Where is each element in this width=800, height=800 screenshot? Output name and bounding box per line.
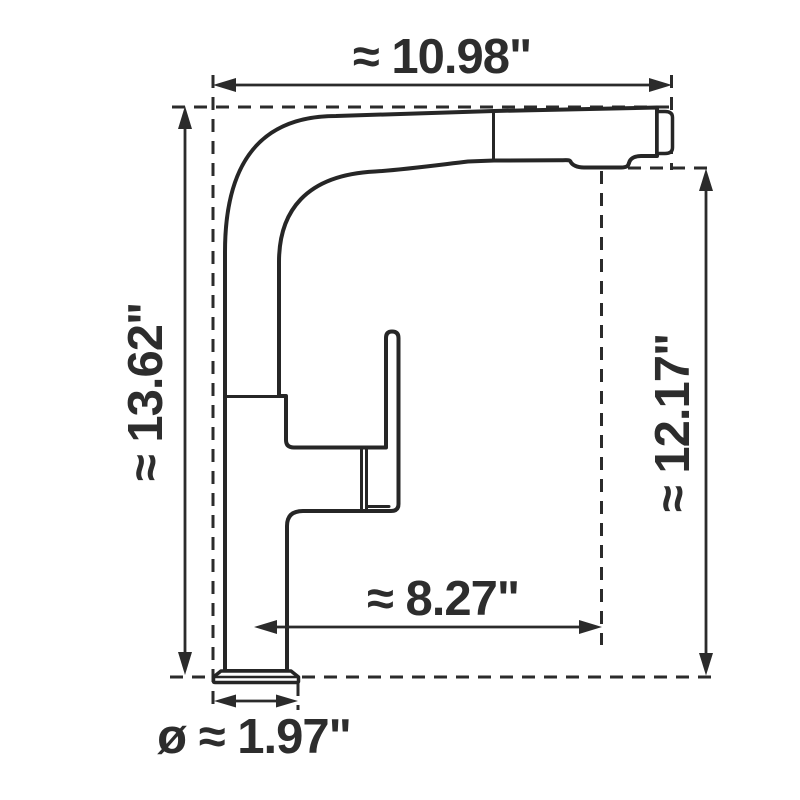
arrowhead-top-width-right: [649, 78, 672, 92]
dimension-label-spout-reach: ≈ 8.27": [367, 571, 519, 627]
dimension-label-spout-height: ≈ 12.17": [645, 334, 701, 512]
arrowhead-spout-height-bottom: [699, 653, 713, 676]
arrowhead-base-diameter-right: [276, 695, 298, 708]
dimension-label-base-diameter: ø ≈ 1.97": [157, 709, 351, 765]
arrowhead-top-width-left: [213, 78, 236, 92]
arrowhead-base-diameter-left: [214, 695, 236, 708]
arrowhead-spout-height-top: [699, 169, 713, 192]
arrowhead-overall-height-bottom: [178, 652, 192, 675]
arrowhead-overall-height-top: [178, 106, 192, 129]
dimension-label-overall-height: ≈ 13.62": [118, 303, 174, 481]
arrowhead-spout-reach-right: [579, 620, 602, 634]
dimension-label-top-width: ≈ 10.98": [353, 29, 531, 85]
faucet-dimension-diagram: ≈ 10.98" ≈ 13.62" ≈ 12.17" ≈ 8.27" ø ≈ 1…: [0, 0, 800, 800]
faucet-spray-tip: [657, 112, 673, 154]
